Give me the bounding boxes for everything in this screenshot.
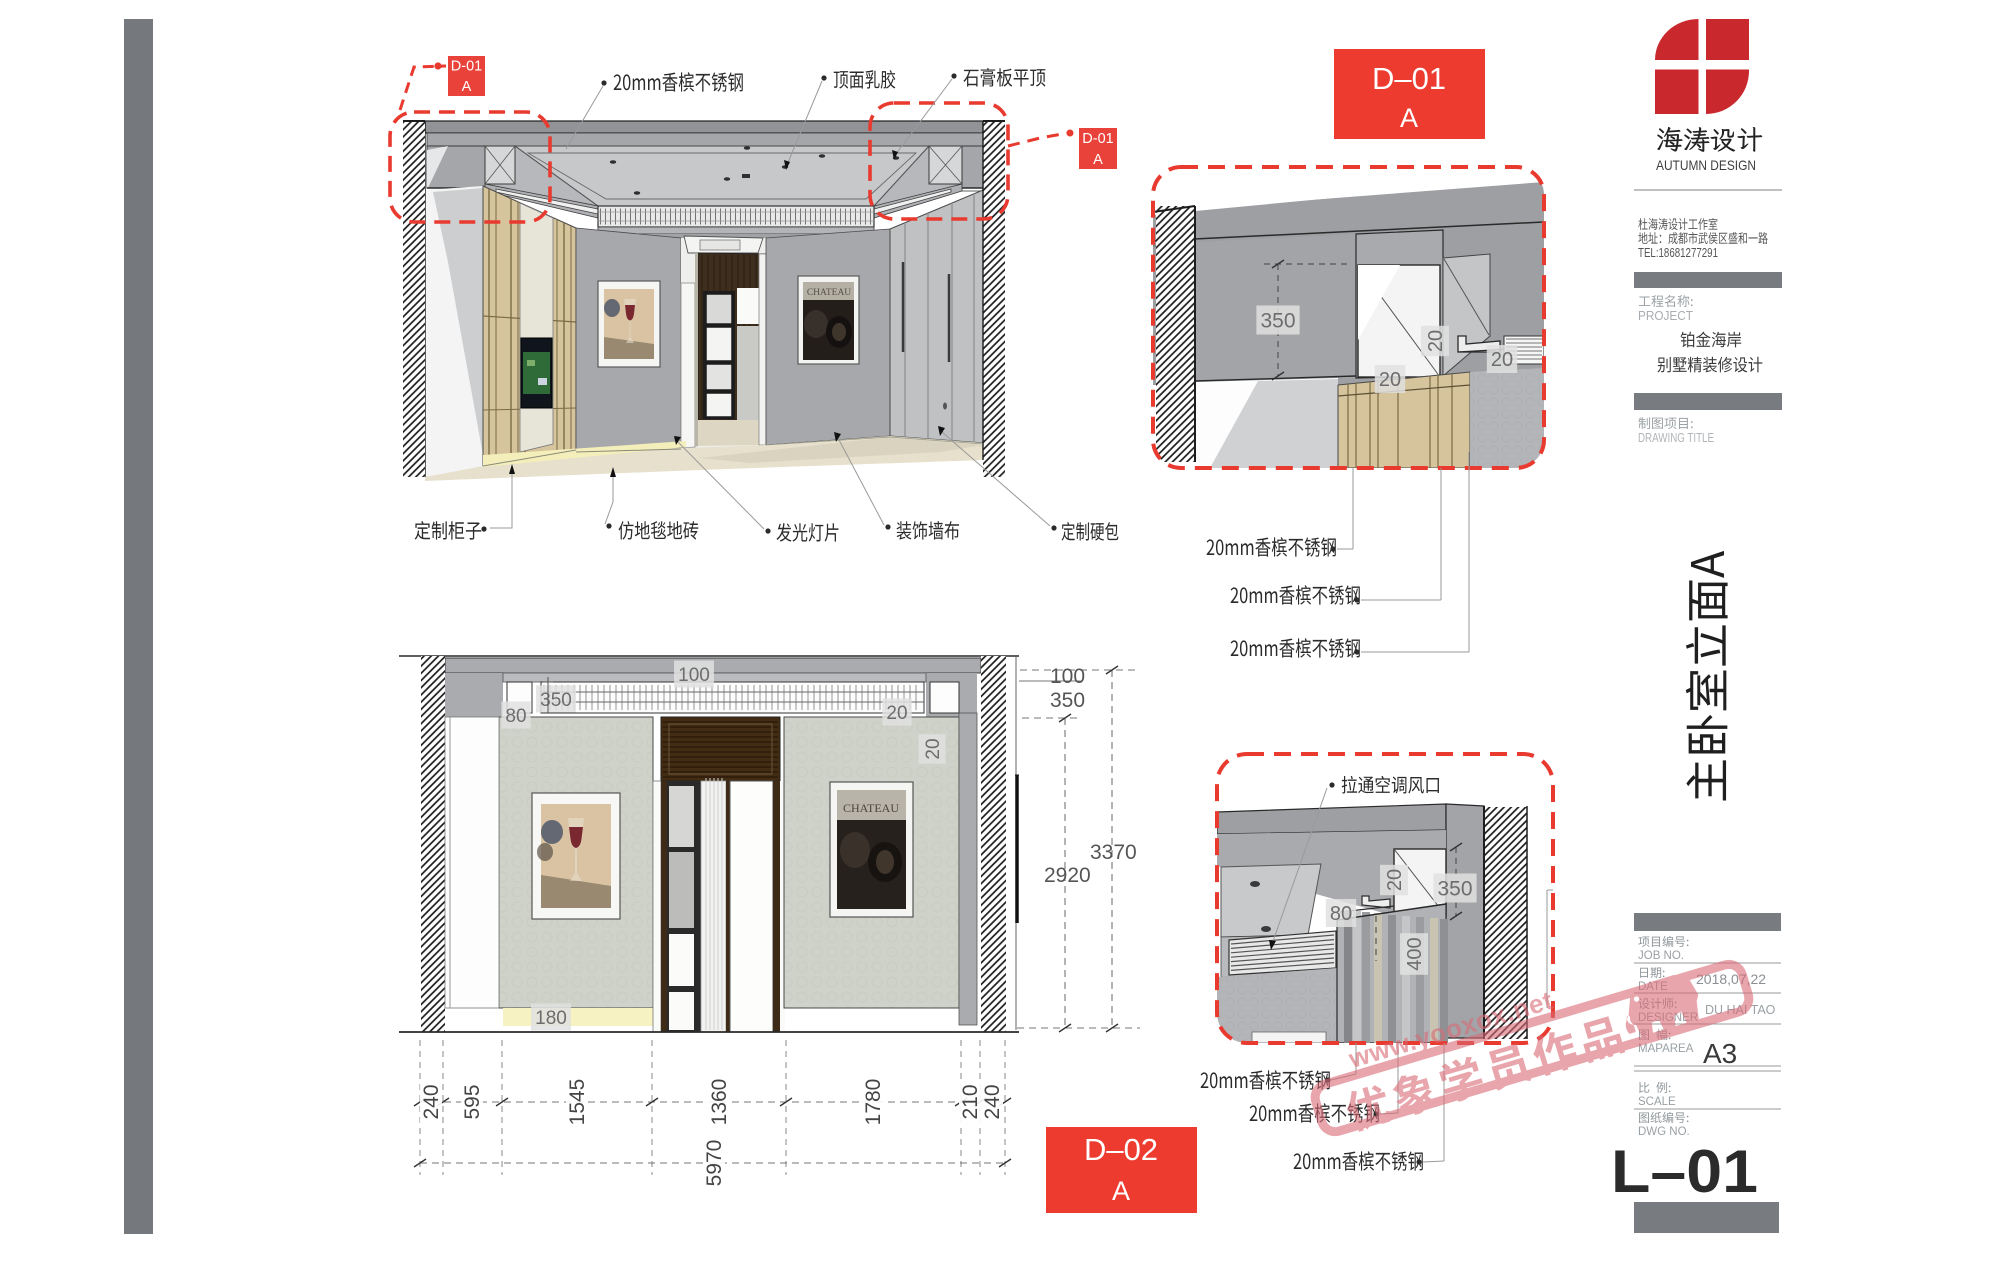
svg-text:350: 350 — [1050, 689, 1085, 712]
svg-text:180: 180 — [535, 1008, 567, 1029]
svg-text:MAPAREA: MAPAREA — [1638, 1043, 1694, 1055]
svg-text:A3: A3 — [1703, 1038, 1737, 1069]
svg-text:D–01: D–01 — [1372, 61, 1446, 96]
svg-text:SCALE: SCALE — [1638, 1096, 1676, 1108]
svg-text:DWG NO.: DWG NO. — [1638, 1126, 1690, 1138]
svg-text:350: 350 — [1260, 310, 1295, 333]
svg-text:20: 20 — [1491, 349, 1513, 371]
svg-text:1360: 1360 — [708, 1079, 731, 1126]
svg-text:240: 240 — [981, 1084, 1004, 1119]
svg-text:D-01: D-01 — [1082, 131, 1113, 147]
svg-text:400: 400 — [1404, 937, 1426, 970]
svg-text:CHATEAU: CHATEAU — [807, 288, 851, 298]
svg-text:DRAWING TITLE: DRAWING TITLE — [1638, 430, 1714, 445]
svg-text:350: 350 — [1437, 878, 1472, 901]
svg-text:CHATEAU: CHATEAU — [843, 801, 899, 815]
svg-text:JOB NO.: JOB NO. — [1638, 950, 1684, 962]
svg-text:D-01: D-01 — [451, 59, 482, 75]
svg-text:PROJECT: PROJECT — [1638, 308, 1693, 323]
svg-text:100: 100 — [678, 665, 710, 686]
svg-text:80: 80 — [505, 706, 526, 727]
svg-text:TEL:18681277291: TEL:18681277291 — [1638, 245, 1718, 260]
svg-text:20: 20 — [1379, 369, 1401, 391]
svg-text:A: A — [1093, 152, 1103, 168]
svg-text:A: A — [1400, 103, 1418, 133]
svg-text:20: 20 — [923, 738, 944, 759]
svg-text:3370: 3370 — [1090, 841, 1137, 864]
svg-text:D–02: D–02 — [1084, 1132, 1158, 1167]
svg-text:100: 100 — [1050, 665, 1085, 688]
svg-text:20: 20 — [1425, 330, 1447, 352]
svg-text:AUTUMN DESIGN: AUTUMN DESIGN — [1656, 157, 1756, 173]
svg-text:5970: 5970 — [703, 1140, 726, 1187]
svg-text:2920: 2920 — [1044, 864, 1091, 887]
svg-text:80: 80 — [1330, 903, 1352, 925]
svg-text:350: 350 — [540, 690, 572, 711]
svg-text:A: A — [462, 79, 472, 95]
svg-text:20: 20 — [1384, 869, 1406, 891]
svg-text:240: 240 — [420, 1084, 443, 1119]
svg-text:1545: 1545 — [566, 1079, 589, 1126]
svg-text:L–01: L–01 — [1611, 1138, 1758, 1205]
svg-text:1780: 1780 — [862, 1079, 885, 1126]
svg-text:20: 20 — [886, 703, 907, 724]
svg-text:210: 210 — [959, 1084, 982, 1119]
svg-text:A: A — [1112, 1176, 1130, 1206]
svg-text:595: 595 — [461, 1084, 484, 1119]
